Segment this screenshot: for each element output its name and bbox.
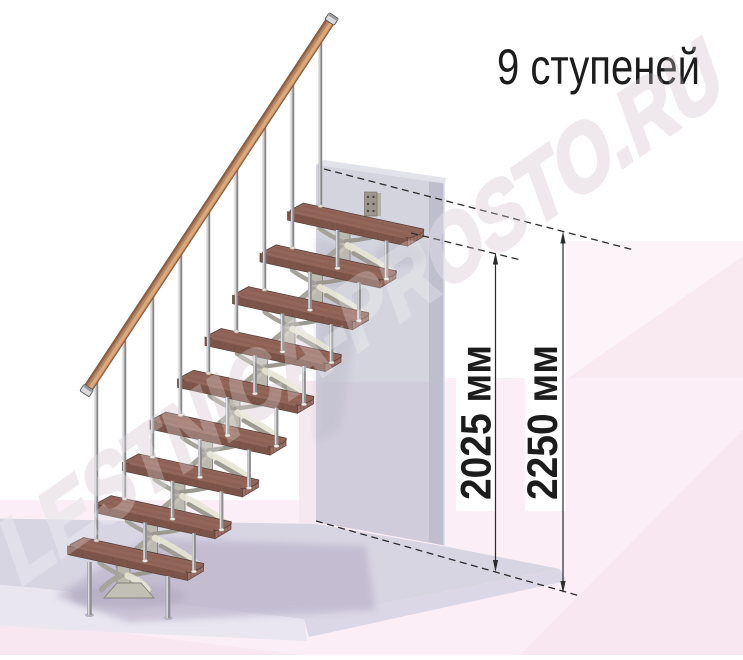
svg-text:2250 мм: 2250 мм <box>519 345 567 500</box>
svg-text:2025 мм: 2025 мм <box>453 345 501 500</box>
